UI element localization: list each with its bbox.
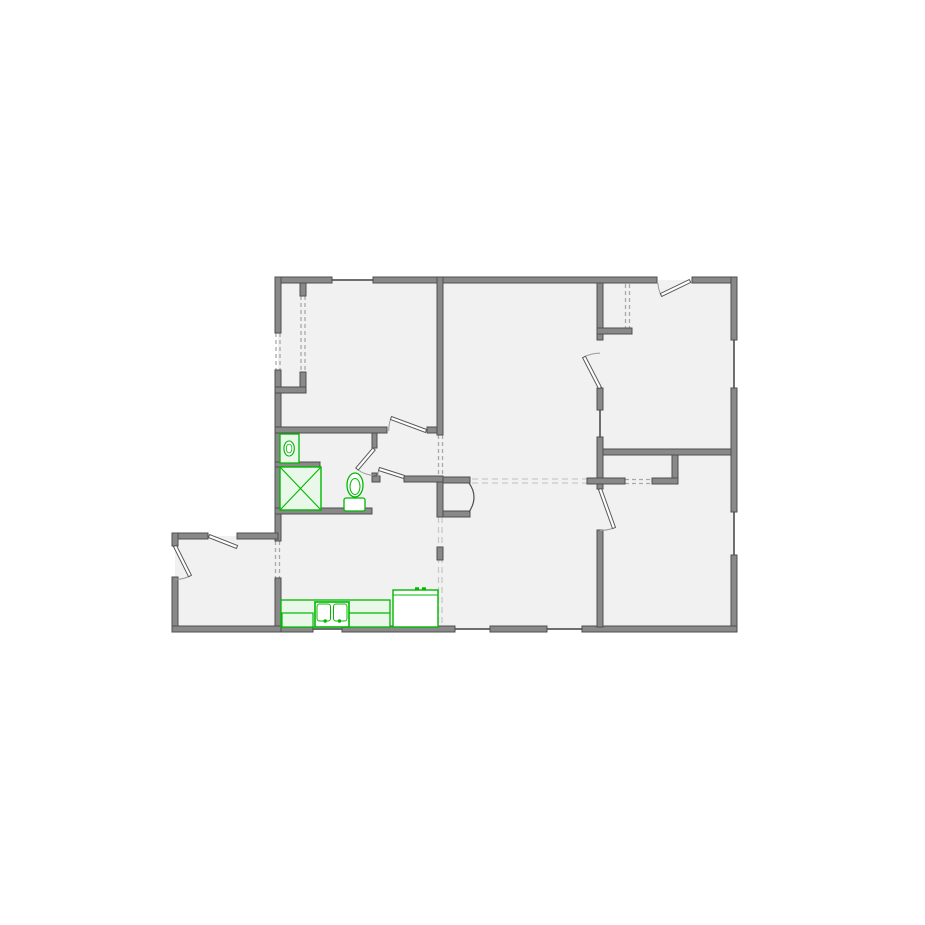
hall-south-wall-a bbox=[372, 476, 380, 482]
closet3-connector bbox=[672, 455, 678, 478]
kitchen-sink-basin-right bbox=[334, 604, 348, 621]
right-wall-lower bbox=[731, 555, 737, 632]
dishwasher[interactable] bbox=[282, 613, 313, 627]
bedroom1-south-wall-a bbox=[275, 427, 387, 433]
closet3-wall-west bbox=[587, 478, 625, 484]
closet1-bottom bbox=[275, 387, 306, 393]
ext-top-wall-b bbox=[237, 533, 278, 539]
left-wall-lower bbox=[275, 578, 281, 632]
arch-spur-top bbox=[443, 477, 470, 483]
floor-plan-canvas[interactable] bbox=[0, 0, 925, 925]
range[interactable] bbox=[393, 590, 438, 627]
hall2-north-wall bbox=[603, 449, 731, 455]
closet2-bottom-wall bbox=[597, 328, 632, 334]
top-wall-middle bbox=[373, 277, 657, 283]
center-wall-b bbox=[597, 388, 603, 410]
toilet-tank bbox=[344, 498, 365, 511]
hall-south-wall-b bbox=[404, 476, 443, 482]
kitchen-sink-basin-left bbox=[317, 604, 331, 621]
left-wall-upper bbox=[275, 277, 281, 333]
right-wall-middle bbox=[731, 388, 737, 512]
bath-vanity-sink-basin bbox=[284, 441, 294, 456]
bottom-wall-c bbox=[490, 626, 547, 632]
arch-column bbox=[437, 477, 443, 517]
top-wall-left bbox=[275, 277, 332, 283]
floor-plan-svg bbox=[0, 0, 925, 925]
ext-left-wall-b bbox=[172, 577, 178, 632]
kitchen-sink-drain-right bbox=[338, 619, 341, 622]
ext-bottom-wall bbox=[172, 626, 281, 632]
center-wall-d bbox=[597, 530, 603, 627]
kitchen-sink-drain-left bbox=[324, 619, 327, 622]
closet3-wall-east bbox=[652, 478, 678, 484]
kitchen-dash-stub bbox=[437, 547, 443, 560]
closet1-jamb bbox=[300, 283, 306, 296]
arch-spur-bottom bbox=[443, 511, 470, 517]
ext-left-wall-a bbox=[172, 533, 178, 546]
bath-door-jamb bbox=[372, 433, 377, 448]
bottom-wall-d bbox=[582, 626, 737, 632]
toilet-bowl bbox=[347, 473, 363, 497]
right-wall-upper bbox=[731, 277, 737, 340]
entry-extension-floor bbox=[175, 536, 279, 628]
living-west-wall bbox=[437, 277, 443, 435]
top-wall-right bbox=[692, 277, 737, 283]
